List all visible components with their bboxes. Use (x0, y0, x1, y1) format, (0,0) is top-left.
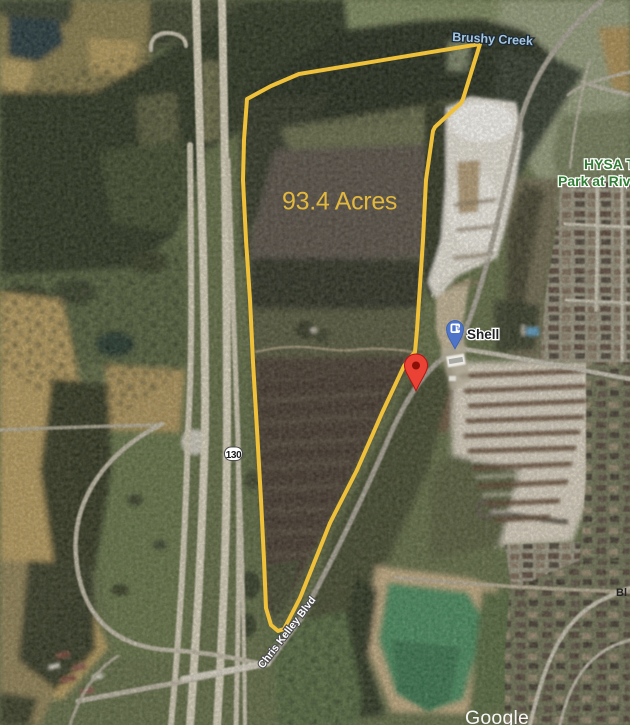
svg-text:Park at Riv: Park at Riv (558, 173, 630, 189)
svg-text:Google: Google (465, 707, 529, 725)
svg-text:Shell: Shell (467, 327, 499, 342)
svg-text:93.4 Acres: 93.4 Acres (282, 188, 397, 216)
svg-text:HYSA T: HYSA T (584, 156, 630, 172)
svg-text:130: 130 (226, 450, 242, 461)
svg-text:Bl: Bl (616, 587, 627, 599)
